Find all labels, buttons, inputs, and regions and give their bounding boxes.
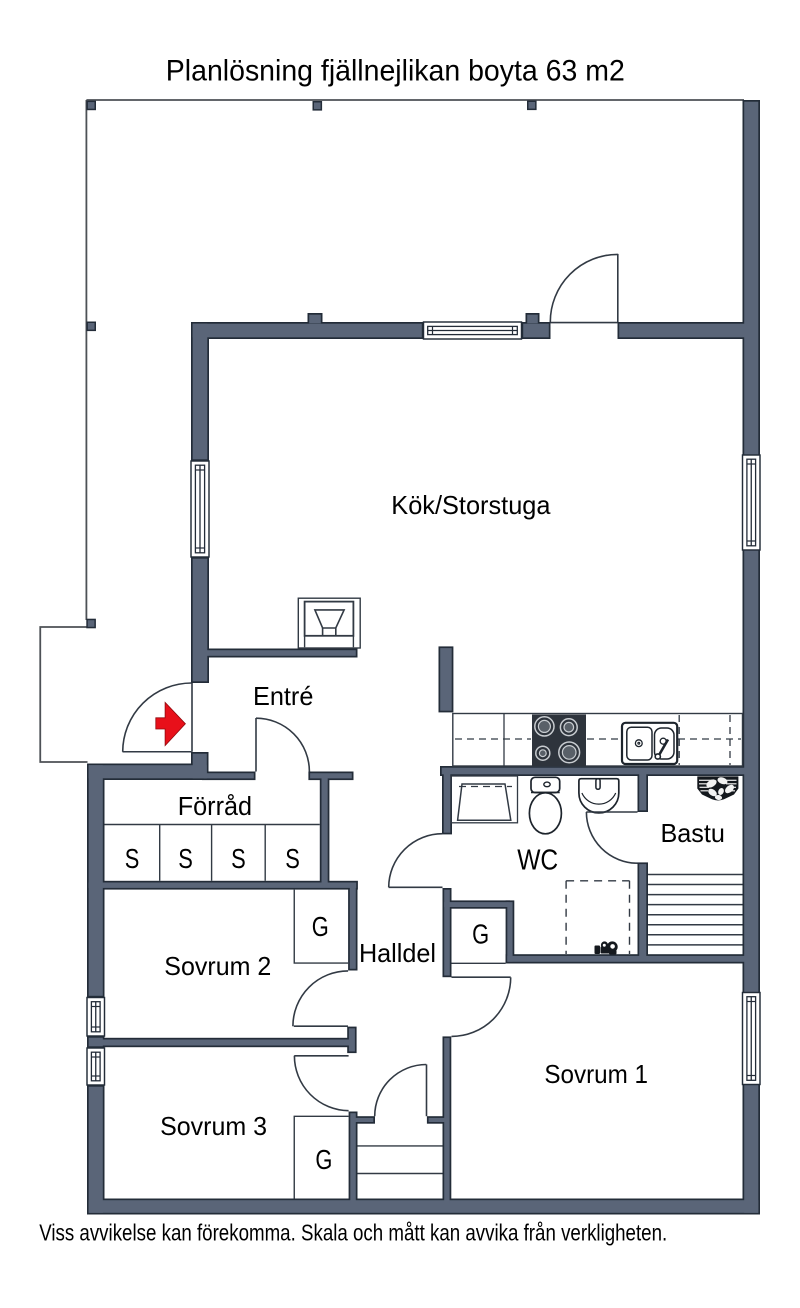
svg-text:Kök/Storstuga: Kök/Storstuga (391, 490, 551, 520)
svg-text:S: S (178, 843, 193, 874)
svg-text:Förråd: Förråd (178, 793, 252, 821)
svg-text:Sovrum 1: Sovrum 1 (544, 1061, 648, 1089)
svg-text:G: G (315, 1144, 332, 1175)
svg-text:G: G (472, 918, 489, 949)
svg-text:Sovrum 3: Sovrum 3 (160, 1113, 267, 1141)
svg-text:Planlösning fjällnejlikan boyt: Planlösning fjällnejlikan boyta 63 m2 (166, 55, 625, 88)
svg-text:Halldel: Halldel (359, 938, 436, 968)
svg-text:G: G (312, 911, 329, 942)
svg-text:S: S (285, 843, 300, 874)
svg-text:WC: WC (517, 844, 558, 876)
svg-text:S: S (231, 843, 246, 874)
svg-text:Viss avvikelse kan förekomma.: Viss avvikelse kan förekomma. Skala och … (39, 1220, 667, 1246)
svg-text:Entré: Entré (253, 681, 314, 711)
svg-text:Bastu: Bastu (660, 818, 725, 848)
svg-text:S: S (125, 843, 140, 874)
svg-text:Sovrum 2: Sovrum 2 (164, 953, 271, 981)
